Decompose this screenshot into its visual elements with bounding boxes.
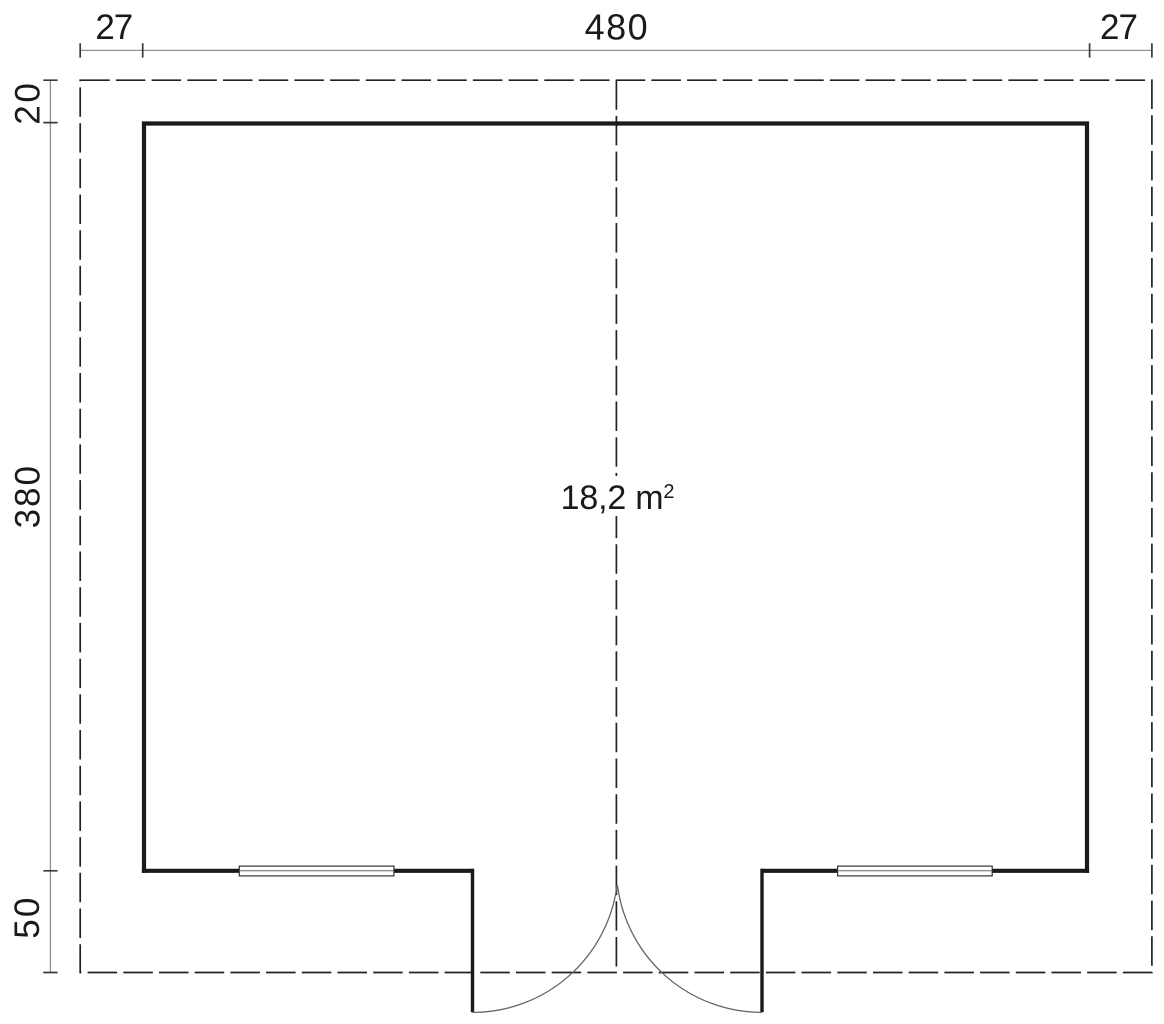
svg-text:18,2 m2: 18,2 m2 (561, 479, 675, 517)
svg-text:50: 50 (8, 895, 47, 938)
svg-text:27: 27 (95, 8, 132, 47)
svg-text:480: 480 (585, 6, 650, 47)
svg-text:380: 380 (8, 464, 47, 528)
svg-text:27: 27 (1100, 8, 1137, 47)
svg-text:20: 20 (8, 80, 47, 124)
